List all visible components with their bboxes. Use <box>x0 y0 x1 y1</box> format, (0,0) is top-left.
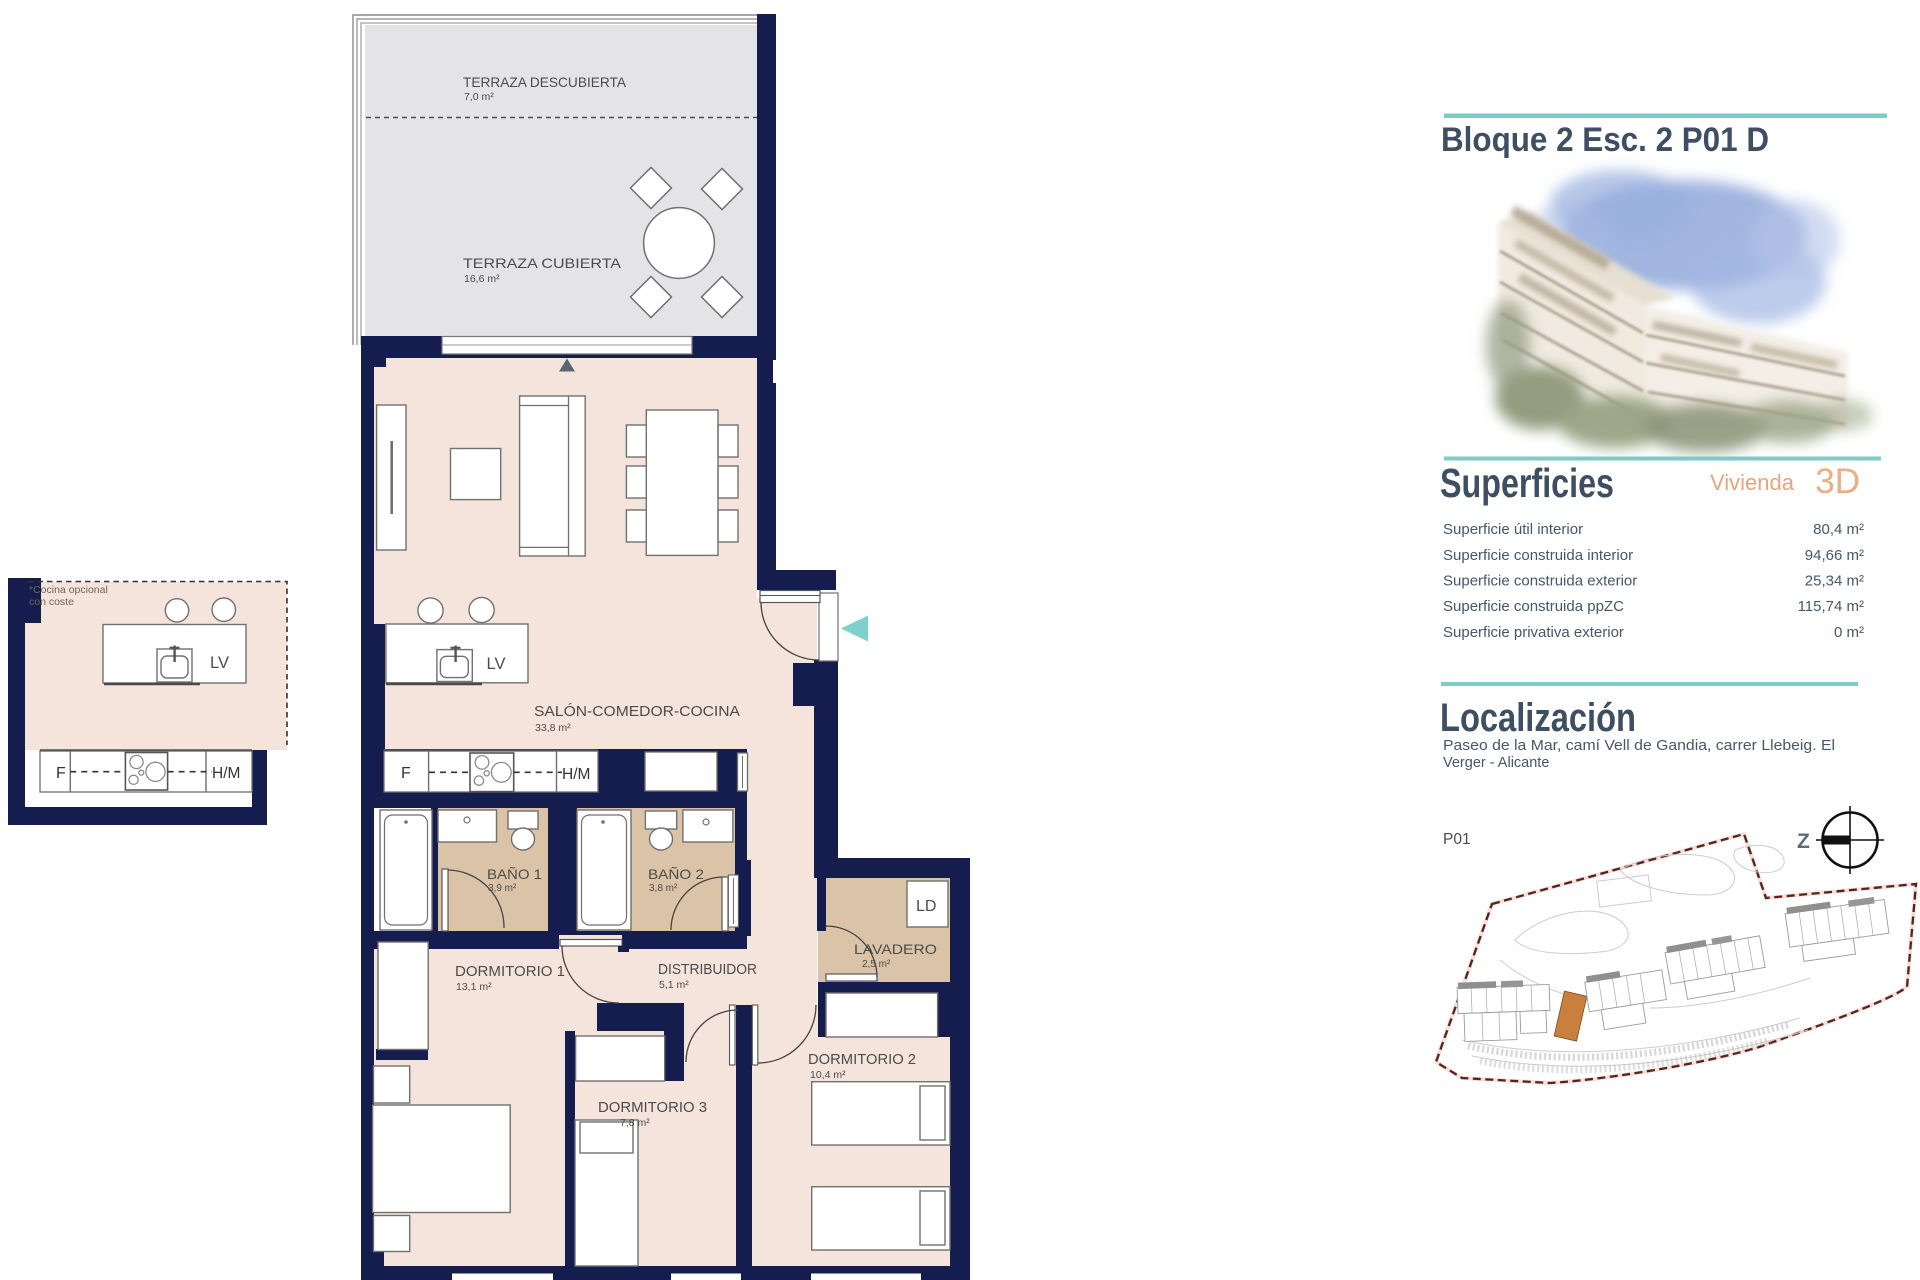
svg-text:Z: Z <box>1797 830 1810 853</box>
svg-text:Superficie construida interior: Superficie construida interior <box>1443 547 1633 564</box>
svg-text:7,0 m²: 7,0 m² <box>464 91 494 103</box>
svg-text:94,66 m²: 94,66 m² <box>1805 547 1864 564</box>
svg-text:F: F <box>56 765 66 782</box>
svg-text:10,4 m²: 10,4 m² <box>810 1069 846 1081</box>
svg-text:con coste: con coste <box>29 596 74 608</box>
svg-text:SALÓN-COMEDOR-COCINA: SALÓN-COMEDOR-COCINA <box>534 703 740 720</box>
svg-text:DORMITORIO 1: DORMITORIO 1 <box>455 964 565 980</box>
svg-text:33,8 m²: 33,8 m² <box>535 722 571 734</box>
svg-text:Superficie construida ppZC: Superficie construida ppZC <box>1443 598 1624 615</box>
svg-text:0 m²: 0 m² <box>1834 624 1864 641</box>
svg-text:LV: LV <box>210 654 229 672</box>
svg-text:*Cocina opcional: *Cocina opcional <box>29 584 108 596</box>
svg-text:H/M: H/M <box>212 765 240 782</box>
svg-text:3D: 3D <box>1815 462 1860 501</box>
svg-text:80,4 m²: 80,4 m² <box>1813 521 1864 538</box>
svg-text:DISTRIBUIDOR: DISTRIBUIDOR <box>658 962 757 978</box>
svg-text:Superficie privativa exterior: Superficie privativa exterior <box>1443 624 1624 641</box>
svg-text:Superficies: Superficies <box>1440 460 1614 506</box>
svg-text:P01: P01 <box>1443 831 1471 848</box>
svg-text:7,8 m²: 7,8 m² <box>620 1117 650 1129</box>
svg-text:BAÑO 1: BAÑO 1 <box>487 866 542 882</box>
svg-text:Superficie construida exterior: Superficie construida exterior <box>1443 573 1637 590</box>
svg-text:LAVADERO: LAVADERO <box>854 941 937 957</box>
svg-text:DORMITORIO 3: DORMITORIO 3 <box>598 1100 707 1116</box>
svg-text:DORMITORIO 2: DORMITORIO 2 <box>808 1052 916 1068</box>
svg-text:BAÑO 2: BAÑO 2 <box>648 866 704 882</box>
svg-text:5,1 m²: 5,1 m² <box>659 979 689 991</box>
svg-text:LD: LD <box>916 898 936 915</box>
svg-text:TERRAZA DESCUBIERTA: TERRAZA DESCUBIERTA <box>463 74 627 90</box>
svg-text:F: F <box>401 765 411 782</box>
svg-text:TERRAZA CUBIERTA: TERRAZA CUBIERTA <box>463 255 622 271</box>
svg-text:25,34 m²: 25,34 m² <box>1805 573 1864 590</box>
svg-text:H/M: H/M <box>562 766 590 783</box>
svg-text:3,8 m²: 3,8 m² <box>649 883 678 894</box>
svg-text:Verger - Alicante: Verger - Alicante <box>1443 755 1549 771</box>
svg-text:Superficie útil interior: Superficie útil interior <box>1443 521 1583 538</box>
svg-text:115,74 m²: 115,74 m² <box>1798 598 1864 615</box>
svg-text:Localización: Localización <box>1440 696 1636 740</box>
svg-text:Bloque 2 Esc. 2 P01 D: Bloque 2 Esc. 2 P01 D <box>1441 121 1769 159</box>
svg-text:13,1 m²: 13,1 m² <box>456 981 492 993</box>
svg-text:LV: LV <box>487 655 506 673</box>
svg-text:Paseo de la Mar, camí Vell de: Paseo de la Mar, camí Vell de Gandia, ca… <box>1443 738 1835 754</box>
svg-text:16,6 m²: 16,6 m² <box>464 273 500 285</box>
svg-text:Vivienda: Vivienda <box>1710 470 1795 495</box>
